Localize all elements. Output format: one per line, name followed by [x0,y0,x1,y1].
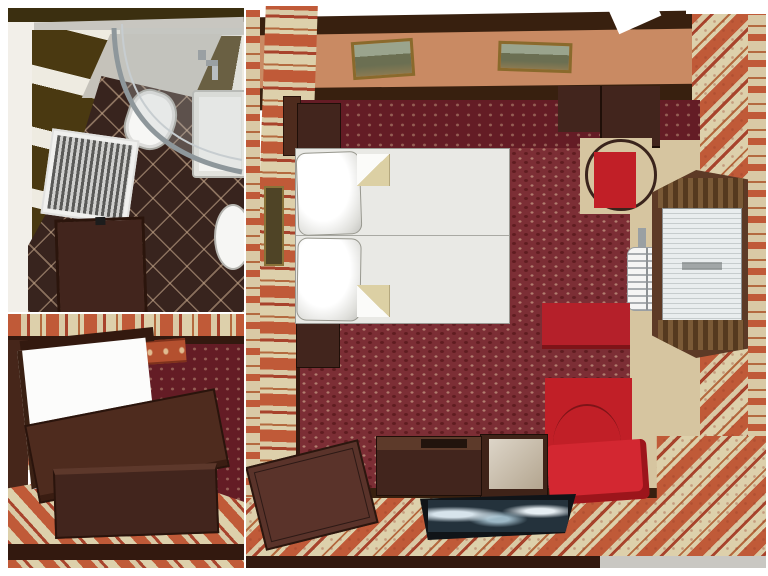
framed-picture-small [264,186,284,266]
radiator-fins [47,135,133,219]
top-right-margin [686,6,766,14]
toilet [214,204,244,270]
south-base-strip [246,556,600,568]
panel-inner-line [254,448,370,543]
folded-blanket-corner-bottom [357,285,390,317]
shower-mixer [198,50,206,60]
skirting-strip [8,544,244,560]
double-bed [295,148,510,324]
panel-radiator [40,128,139,225]
south-base-strip-light [600,556,766,568]
framed-picture-2 [497,41,572,74]
wood-chest [53,463,219,539]
window-with-blinds [652,170,748,358]
shower-head [212,66,218,80]
red-bench [542,303,630,349]
wardrobe-nightstand [297,103,341,152]
pillow-bottom [296,237,361,321]
flat-screen-tv [420,494,576,540]
render-canvas [0,0,768,576]
marble-top-cube-table [480,434,548,500]
bathroom-plan-view [8,8,244,312]
radiator-split [646,248,648,310]
chair-seat [594,152,636,208]
marble-top [489,439,543,489]
console-table [376,436,482,496]
folded-blanket-corner-top [357,154,390,186]
bedroom-plan-view [246,6,766,568]
bedroom-perspective-view [8,314,244,568]
pillow-top [296,151,363,236]
nightstand [296,322,340,368]
blind-control [682,262,722,270]
vanity-handle [95,217,105,225]
tv-screen [428,500,568,532]
duvet-divider [296,235,509,236]
framed-picture-1 [351,38,415,80]
vanity-cabinet [54,216,147,312]
console-tray [421,439,467,448]
